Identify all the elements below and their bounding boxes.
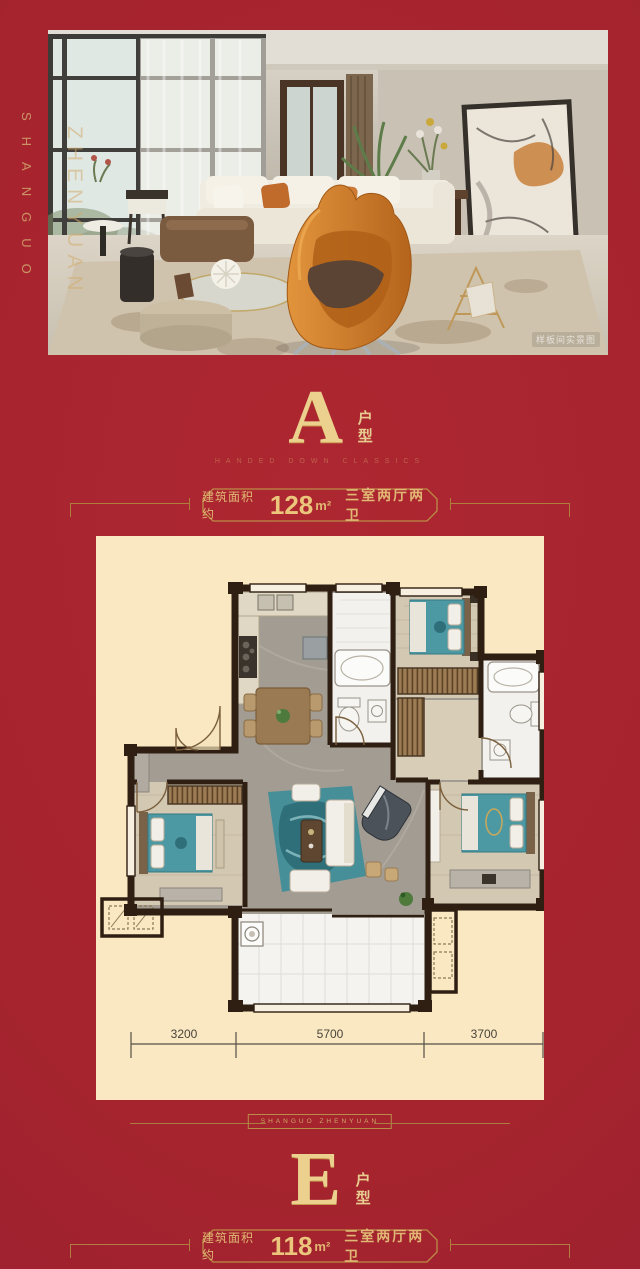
fridge — [303, 637, 327, 659]
section-e-heading: E 户型 — [0, 1148, 640, 1210]
overlay-vertical-text: ZHENYUAN — [52, 126, 86, 296]
banner-left-line — [70, 1244, 190, 1245]
area-prefix: 建筑面积约 — [202, 1229, 265, 1263]
banner-right-line — [450, 503, 570, 504]
hero-photo: 样板间实景图 — [48, 30, 608, 355]
tv-panel — [430, 790, 440, 862]
dim-5700: 5700 — [317, 1027, 344, 1041]
banner-box-a: 建筑面积约 128 m² 三室两厅两卫 — [202, 488, 438, 522]
dim-3700: 3700 — [471, 1027, 498, 1041]
area-banner-a: 建筑面积约 128 m² 三室两厅两卫 — [0, 488, 640, 522]
floorplan-drawing: 3200 5700 3700 — [96, 536, 544, 1100]
dining-set — [244, 688, 322, 744]
dimension-labels: 3200 5700 3700 — [171, 1027, 498, 1041]
area-prefix: 建筑面积约 — [202, 488, 265, 522]
shoe-cabinet — [133, 752, 149, 792]
balcony — [241, 922, 263, 946]
divider-right-line — [374, 1123, 510, 1124]
orange-pillow — [260, 182, 290, 211]
area-unit: m² — [314, 1239, 330, 1254]
brand-divider: SHANGUO ZHENYUAN — [0, 1114, 640, 1134]
type-a-label: 户型 — [355, 410, 372, 446]
type-e-letter: E — [290, 1148, 341, 1210]
type-a-letter: A — [288, 386, 343, 448]
banner-right-line — [450, 1244, 570, 1245]
section-a-subtitle: HANDED DOWN CLASSICS — [0, 458, 640, 465]
right-bedroom — [450, 792, 535, 888]
floorplan-panel: 3200 5700 3700 — [96, 536, 544, 1100]
type-e-label: 户型 — [353, 1172, 370, 1208]
banner-left-line — [70, 503, 190, 504]
balcony-floor — [237, 914, 426, 1006]
layout-text: 三室两厅两卫 — [345, 485, 438, 525]
dim-3200: 3200 — [171, 1027, 198, 1041]
divider-left-line — [130, 1123, 266, 1124]
promo-page: SHANGUO — [0, 0, 640, 1269]
area-unit: m² — [315, 498, 331, 513]
banner-box-e: 建筑面积约 118 m² 三室两厅两卫 — [202, 1229, 438, 1263]
area-banner-e: 建筑面积约 118 m² 三室两厅两卫 — [0, 1229, 640, 1263]
section-a-heading: A 户型 HANDED DOWN CLASSICS — [0, 386, 640, 465]
layout-text: 三室两厅两卫 — [344, 1226, 438, 1266]
divider-label: SHANGUO ZHENYUAN — [248, 1114, 392, 1129]
photo-watermark: 样板间实景图 — [532, 332, 600, 347]
area-value: 128 — [270, 492, 313, 518]
area-value: 118 — [270, 1233, 312, 1259]
brand-vertical-text: SHANGUO — [8, 112, 34, 372]
living-room-scene — [48, 30, 608, 355]
